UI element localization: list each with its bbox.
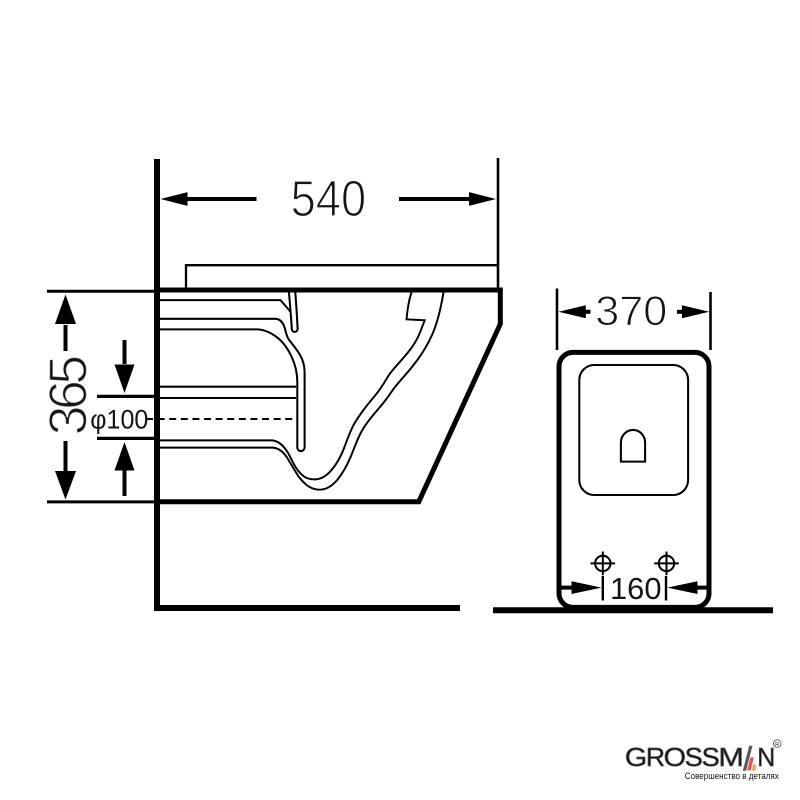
svg-text:540: 540 xyxy=(291,170,367,227)
svg-text:G: G xyxy=(625,742,647,772)
svg-text:R: R xyxy=(646,742,665,772)
svg-text:R: R xyxy=(775,742,779,748)
svg-text:S: S xyxy=(685,742,703,772)
svg-text:S: S xyxy=(702,742,720,772)
svg-text:O: O xyxy=(664,742,686,772)
svg-text:160: 160 xyxy=(610,571,662,606)
svg-text:370: 370 xyxy=(595,287,667,334)
svg-text:Совершенство в деталях: Совершенство в деталях xyxy=(685,771,779,781)
svg-text:φ100: φ100 xyxy=(90,405,148,435)
svg-text:M: M xyxy=(718,742,744,772)
svg-text:N: N xyxy=(757,742,775,772)
